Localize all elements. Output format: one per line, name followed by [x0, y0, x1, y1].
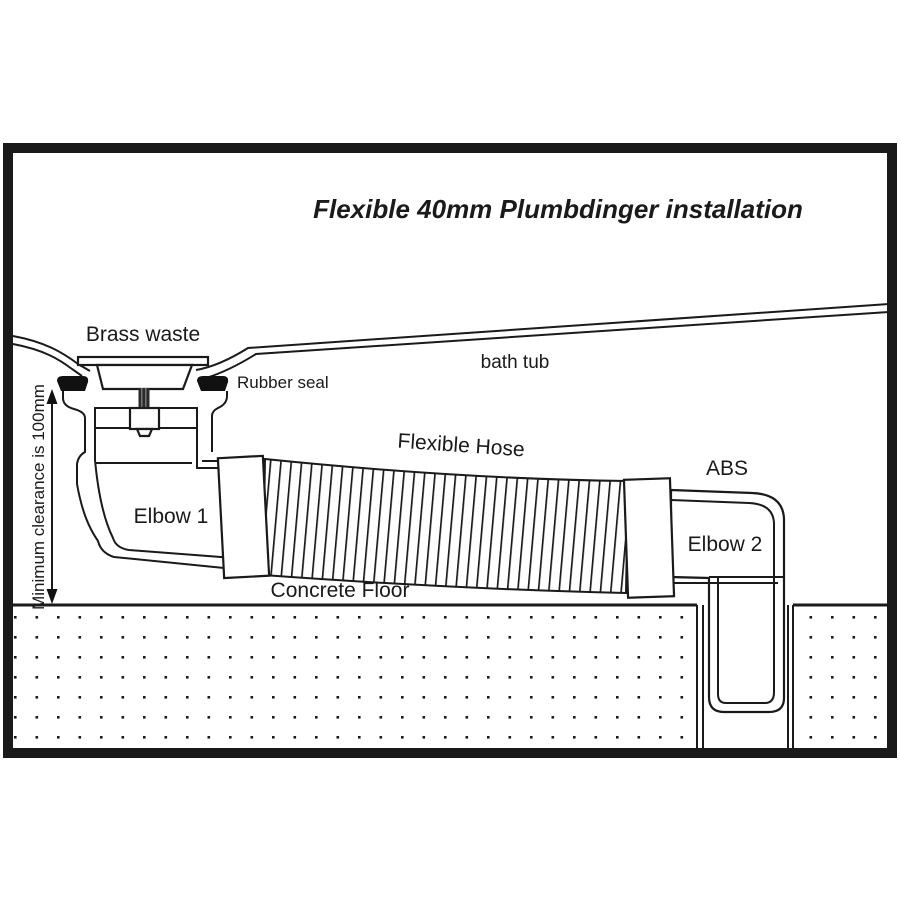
plumbing-installation-diagram: Flexible 40mm Plumbdinger installation B… — [0, 0, 900, 900]
label-min-clearance: Minimum clearance is 100mm — [29, 384, 48, 610]
clearance-arrow — [47, 389, 58, 604]
label-rubber-seal: Rubber seal — [237, 373, 329, 392]
label-concrete-floor: Concrete Floor — [271, 579, 410, 602]
rubber-seal-left — [57, 376, 88, 391]
hose-coupling-2 — [624, 478, 674, 598]
label-elbow-1: Elbow 1 — [134, 505, 209, 528]
label-elbow-2: Elbow 2 — [688, 533, 763, 556]
concrete-dots-right — [794, 608, 888, 747]
page-title: Flexible 40mm Plumbdinger installation — [313, 194, 803, 224]
label-abs: ABS — [706, 457, 748, 480]
concrete-dots-left — [14, 608, 696, 747]
label-brass-waste: Brass waste — [86, 323, 200, 346]
brass-waste-fitting — [78, 357, 208, 389]
flexible-hose — [263, 459, 628, 593]
diagram-canvas: Flexible 40mm Plumbdinger installation B… — [0, 0, 900, 900]
label-bath-tub: bath tub — [481, 352, 550, 373]
waste-stem-and-nut — [130, 388, 159, 436]
rubber-seal-right — [197, 376, 228, 391]
label-flexible-hose: Flexible Hose — [397, 430, 526, 462]
hose-coupling-1 — [218, 456, 269, 578]
